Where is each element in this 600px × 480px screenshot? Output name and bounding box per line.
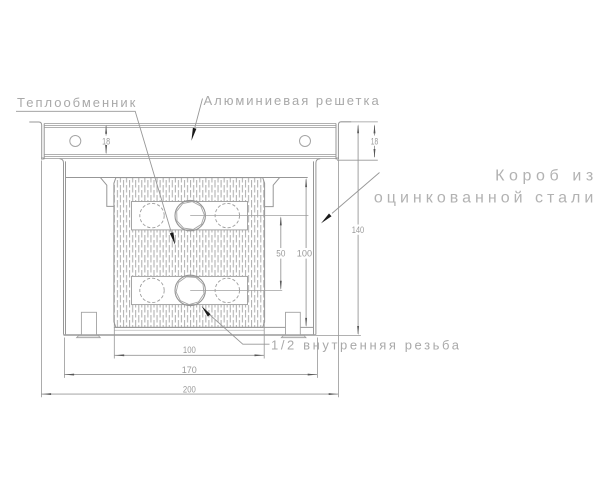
svg-text:50: 50 xyxy=(276,249,285,259)
svg-text:Теплообменник: Теплообменник xyxy=(17,95,137,110)
svg-text:1/2 внутренняя резьба: 1/2 внутренняя резьба xyxy=(271,338,462,353)
svg-text:18: 18 xyxy=(371,136,378,146)
svg-text:140: 140 xyxy=(352,225,365,235)
svg-text:18: 18 xyxy=(102,136,110,146)
svg-text:Алюминиевая решетка: Алюминиевая решетка xyxy=(204,93,381,108)
svg-text:100: 100 xyxy=(297,249,312,259)
svg-text:200: 200 xyxy=(183,385,196,395)
svg-text:100: 100 xyxy=(183,345,196,355)
svg-text:Короб из: Короб из xyxy=(495,168,598,185)
svg-text:170: 170 xyxy=(182,365,197,375)
svg-text:оцинкованной стали: оцинкованной стали xyxy=(374,189,597,206)
